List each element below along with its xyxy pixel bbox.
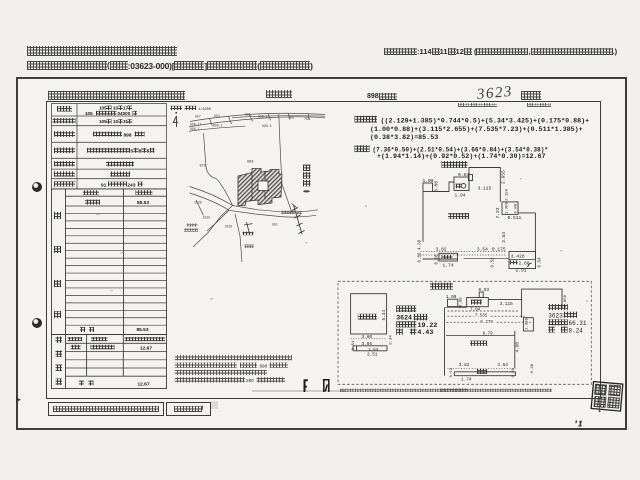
svg-text:1/1000: 1/1000 [198, 107, 211, 112]
svg-text:0.88: 0.88 [434, 181, 440, 192]
svg-text:898: 898 [124, 132, 132, 138]
svg-text:66.31: 66.31 [569, 320, 587, 327]
svg-text:105: 105 [85, 111, 93, 116]
svg-text:891: 891 [272, 223, 278, 227]
svg-text:2.159: 2.159 [506, 188, 510, 201]
svg-text:3.82: 3.82 [436, 246, 447, 252]
svg-text:8: 8 [139, 149, 142, 155]
svg-text:1.385: 1.385 [506, 201, 510, 214]
svg-text:898: 898 [247, 161, 253, 165]
svg-text:0.88: 0.88 [460, 297, 464, 307]
svg-text:895: 895 [245, 112, 251, 116]
svg-text:3.428: 3.428 [511, 254, 525, 260]
svg-text:290: 290 [246, 378, 254, 383]
svg-text:(1.00*0.88)+(3.115*2.655)+(7.5: (1.00*0.88)+(3.115*2.655)+(7.535*7.23)+(… [370, 126, 583, 134]
svg-text:0.54: 0.54 [352, 340, 356, 350]
svg-text:2.91: 2.91 [516, 268, 527, 274]
svg-text:3.54: 3.54 [501, 232, 507, 243]
svg-text:85.53: 85.53 [137, 200, 149, 206]
svg-text:896-7: 896-7 [190, 127, 200, 131]
svg-text:1.305: 1.305 [526, 317, 530, 330]
svg-text:765: 765 [304, 117, 310, 121]
svg-text:8.79: 8.79 [483, 333, 494, 337]
svg-text:0.06 4.38: 0.06 4.38 [419, 239, 423, 262]
svg-text:7.23: 7.23 [495, 207, 501, 218]
svg-text:4.43: 4.43 [418, 329, 434, 336]
svg-text:4.60: 4.60 [516, 342, 521, 353]
svg-text:85.53: 85.53 [137, 327, 149, 333]
svg-text:0.52: 0.52 [491, 257, 495, 268]
svg-text:896-2: 896-2 [213, 124, 223, 128]
svg-text:3.115: 3.115 [500, 302, 514, 307]
svg-text:8.24: 8.24 [569, 327, 584, 334]
svg-text:91: 91 [101, 182, 107, 188]
svg-text:1036: 1036 [194, 200, 202, 204]
svg-text:+(1.94*1.14)+(0.92*0.52)+(1.74: +(1.94*1.14)+(0.92*0.52)+(1.74*0.30)=12.… [377, 153, 546, 161]
svg-text:897: 897 [195, 114, 201, 118]
svg-text:243: 243 [128, 182, 136, 188]
svg-text:0.54: 0.54 [538, 257, 542, 268]
svg-text:0.511: 0.511 [508, 215, 522, 221]
svg-text:10: 10 [113, 119, 119, 124]
svg-text:896-5: 896-5 [262, 124, 272, 128]
svg-text:898: 898 [260, 364, 268, 369]
svg-text:8: 8 [147, 149, 150, 155]
svg-text:' 1: ' 1 [575, 419, 582, 428]
svg-text:5: 5 [131, 149, 134, 155]
svg-text:875: 875 [200, 164, 206, 168]
svg-text:0.34: 0.34 [389, 335, 393, 345]
svg-text:8.279: 8.279 [480, 321, 493, 325]
svg-text:1.94: 1.94 [455, 193, 466, 199]
svg-text:7.535: 7.535 [475, 314, 488, 318]
svg-text:0.38: 0.38 [531, 363, 535, 373]
svg-text:1.74: 1.74 [443, 263, 454, 269]
svg-text:3.115: 3.115 [478, 185, 492, 191]
svg-text:105: 105 [99, 106, 107, 111]
svg-text:04000: 04000 [118, 111, 131, 116]
svg-text:2.655: 2.655 [501, 170, 507, 184]
svg-text:12.67: 12.67 [138, 382, 150, 388]
svg-text:10: 10 [113, 106, 119, 111]
svg-text:12.67: 12.67 [140, 346, 152, 352]
svg-text:5.34: 5.34 [382, 310, 387, 321]
svg-text:3.54: 3.54 [497, 363, 508, 368]
svg-text:3.54: 3.54 [477, 246, 488, 252]
svg-text:903: 903 [214, 114, 220, 118]
svg-text:3.82: 3.82 [459, 363, 470, 368]
svg-text:0.88: 0.88 [515, 203, 519, 213]
svg-text:763: 763 [288, 115, 294, 119]
svg-text:1030: 1030 [225, 225, 233, 229]
svg-text:3624: 3624 [396, 315, 412, 322]
svg-text:0.93: 0.93 [479, 288, 490, 293]
svg-text:7.04: 7.04 [470, 308, 481, 312]
svg-text:3.60: 3.60 [362, 335, 373, 340]
svg-text:0.52: 0.52 [450, 367, 454, 377]
svg-text:896-17: 896-17 [190, 122, 202, 126]
svg-text:3623: 3623 [548, 312, 563, 319]
svg-text:0.50: 0.50 [512, 367, 516, 377]
svg-text:1.00: 1.00 [423, 178, 434, 184]
svg-text:1.74: 1.74 [461, 377, 472, 382]
svg-text:0.50: 0.50 [435, 254, 439, 265]
svg-text:896-1: 896-1 [258, 115, 268, 119]
svg-text:19.22: 19.22 [418, 322, 438, 329]
svg-text:((2.129+1.385)*0.744*0.5)+(5.3: ((2.129+1.385)*0.744*0.5)+(5.34*3.425)+(… [381, 117, 590, 125]
svg-text:2.51: 2.51 [367, 353, 378, 358]
svg-text:105: 105 [99, 119, 107, 124]
svg-text:0.175: 0.175 [492, 246, 506, 252]
svg-text:0.93: 0.93 [458, 172, 469, 178]
svg-text:1029: 1029 [203, 216, 211, 220]
svg-text:(0.38*3.82)=85.53: (0.38*3.82)=85.53 [370, 134, 438, 142]
